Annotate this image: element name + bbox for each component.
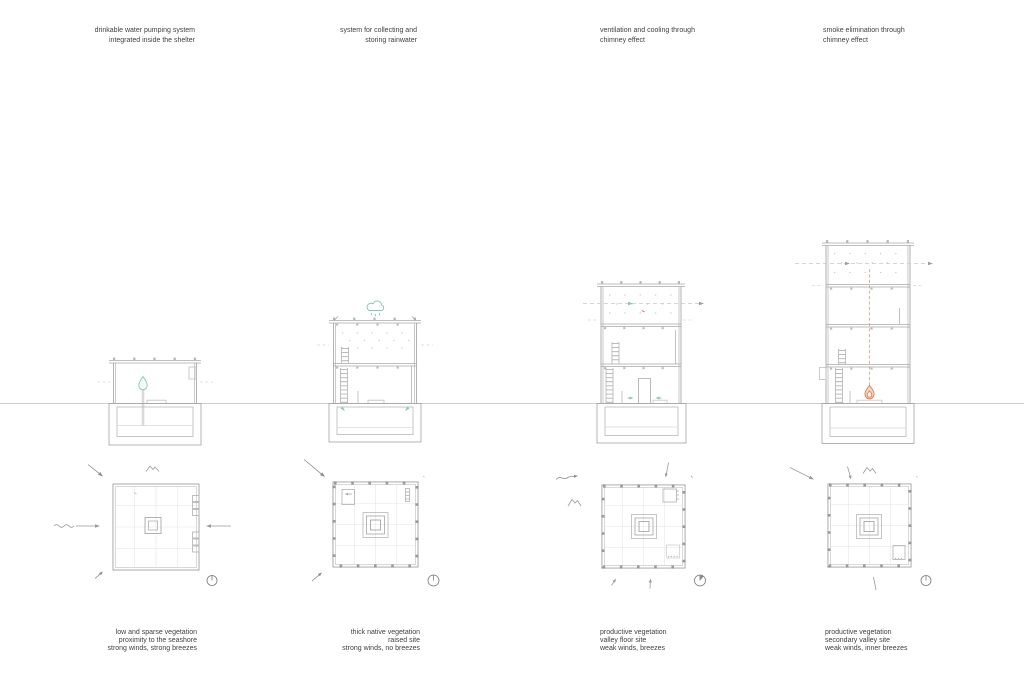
rain-cloud-icon bbox=[367, 301, 384, 316]
stair-hatch bbox=[406, 489, 410, 502]
mountain-icon bbox=[863, 468, 876, 474]
stair-hatch bbox=[663, 489, 679, 502]
mountain-icon bbox=[146, 466, 159, 472]
weak-wind-arrow-icon bbox=[556, 474, 578, 479]
flame-icon bbox=[865, 386, 874, 399]
plan-drawing-1 bbox=[54, 465, 231, 586]
wind-arrow-icon bbox=[790, 468, 815, 482]
diagram-page: { "page": { "background": "#ffffff", "de… bbox=[0, 0, 1024, 683]
sea-waves-icon bbox=[54, 525, 74, 528]
plan-drawing-4 bbox=[790, 467, 931, 591]
sea-breeze-arrow-icon bbox=[76, 524, 100, 528]
plan-drawing-2 bbox=[304, 460, 439, 587]
north-arrow-icon bbox=[695, 575, 706, 586]
door-swing-arrow-icon bbox=[345, 493, 353, 496]
breeze-arrow-icon bbox=[612, 578, 652, 589]
section-drawing-3 bbox=[583, 282, 704, 443]
north-arrow-icon bbox=[921, 576, 931, 586]
section-drawing-2 bbox=[317, 301, 433, 442]
wind-arrow-icon bbox=[304, 460, 326, 479]
mountain-icon bbox=[568, 500, 581, 507]
north-arrow-icon bbox=[207, 576, 217, 586]
north-arrow-icon bbox=[428, 575, 439, 586]
breeze-arrow-icon bbox=[95, 570, 104, 578]
stove bbox=[639, 379, 651, 404]
airflow-arrow-icon bbox=[795, 262, 933, 266]
plan-drawing-3 bbox=[556, 463, 706, 589]
section-drawing-4 bbox=[795, 241, 933, 443]
intake-air-arrow-icon bbox=[628, 397, 662, 400]
ladder-middle bbox=[612, 342, 619, 364]
ladder-lower bbox=[606, 368, 613, 404]
water-drop-icon bbox=[139, 377, 147, 390]
east-wind-arrow-icon bbox=[206, 524, 231, 528]
ladder-middle bbox=[839, 349, 846, 365]
breeze-line bbox=[874, 577, 877, 590]
breeze-arrow-icon bbox=[664, 463, 692, 478]
breeze-arrow-icon bbox=[312, 571, 323, 581]
section-drawing-1 bbox=[97, 359, 213, 445]
wind-arrow-icon bbox=[88, 465, 104, 478]
breeze-arrow-icon bbox=[848, 467, 853, 480]
ladder-lower bbox=[341, 368, 348, 404]
diagram-canvas bbox=[0, 0, 1024, 683]
ladder-lower bbox=[836, 368, 843, 404]
ladder-upper bbox=[342, 347, 349, 364]
